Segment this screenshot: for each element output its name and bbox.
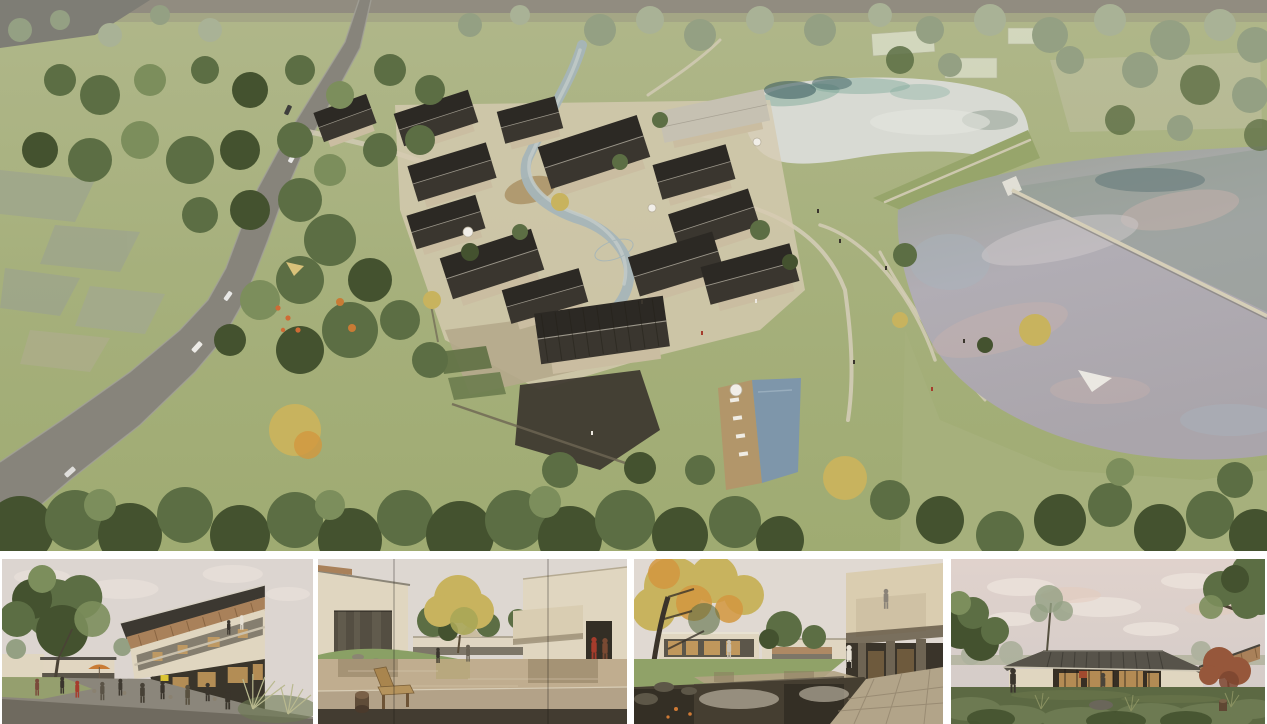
panel-waterfall-courtyard	[634, 559, 943, 724]
stump-stool	[355, 691, 369, 713]
interior-artwork	[1079, 671, 1087, 678]
tree-stump	[1219, 699, 1227, 711]
panel-dusk-pavilion	[951, 559, 1265, 724]
rock	[1089, 700, 1113, 710]
balcony-volume	[846, 563, 943, 645]
right-building	[513, 567, 627, 669]
shop-sign	[161, 675, 169, 681]
panel-street-cafe	[2, 559, 313, 724]
panel-reflecting-pond	[318, 559, 627, 724]
aerial-rendering	[0, 0, 1267, 551]
swimming-pool	[718, 378, 801, 490]
pool-umbrella	[730, 384, 742, 396]
presentation-board	[0, 0, 1267, 724]
